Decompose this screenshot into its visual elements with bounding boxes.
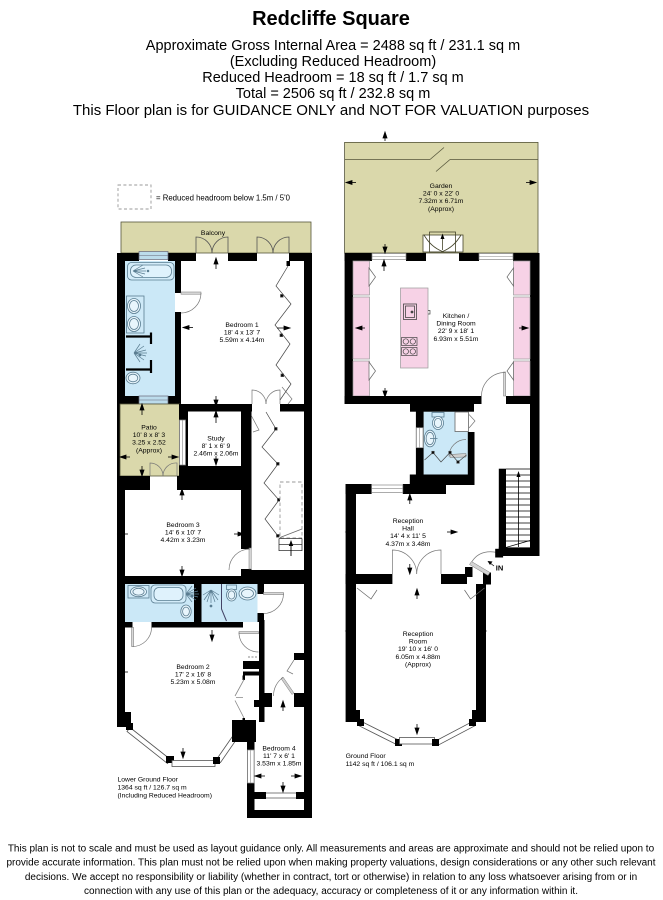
svg-text:14' 6 x 10' 7: 14' 6 x 10' 7 bbox=[165, 530, 201, 537]
svg-text:24' 0 x 22' 0: 24' 0 x 22' 0 bbox=[423, 191, 459, 198]
svg-text:(Approx): (Approx) bbox=[428, 206, 454, 213]
svg-text:Total = 2506 sq ft / 232.8 sq: Total = 2506 sq ft / 232.8 sq m bbox=[236, 86, 431, 102]
svg-text:10' 8 x 8' 3: 10' 8 x 8' 3 bbox=[133, 432, 166, 439]
svg-text:19' 10 x 16' 0: 19' 10 x 16' 0 bbox=[398, 646, 438, 653]
svg-text:Room: Room bbox=[409, 639, 427, 646]
svg-text:Reduced Headroom = 18 sq ft /: Reduced Headroom = 18 sq ft / 1.7 sq m bbox=[202, 70, 464, 86]
svg-text:(Including Reduced Headroom): (Including Reduced Headroom) bbox=[118, 793, 212, 800]
svg-text:5.23m x 5.08m: 5.23m x 5.08m bbox=[171, 679, 216, 686]
svg-text:3.25 x 2.52: 3.25 x 2.52 bbox=[132, 440, 166, 447]
svg-text:14' 4 x 11' 5: 14' 4 x 11' 5 bbox=[390, 533, 426, 540]
svg-text:provide accurate information.: provide accurate information. This plan … bbox=[6, 858, 655, 869]
svg-text:Approximate Gross Internal Are: Approximate Gross Internal Area = 2488 s… bbox=[146, 38, 520, 54]
svg-text:6.93m x 5.51m: 6.93m x 5.51m bbox=[434, 336, 479, 343]
svg-text:8' 1 x 6' 9: 8' 1 x 6' 9 bbox=[202, 443, 231, 450]
svg-text:11' 7 x 6' 1: 11' 7 x 6' 1 bbox=[263, 753, 295, 760]
svg-text:Patio: Patio bbox=[141, 425, 157, 432]
svg-text:Bedroom 3: Bedroom 3 bbox=[166, 522, 199, 529]
svg-text:Bedroom 4: Bedroom 4 bbox=[262, 746, 295, 753]
svg-text:1142 sq ft / 106.1 sq m: 1142 sq ft / 106.1 sq m bbox=[346, 761, 415, 768]
svg-text:Bedroom 2: Bedroom 2 bbox=[176, 664, 209, 671]
svg-text:This Floor plan is for GUIDANC: This Floor plan is for GUIDANCE ONLY and… bbox=[73, 102, 589, 119]
svg-text:Balcony: Balcony bbox=[201, 230, 226, 237]
svg-text:Redcliffe Square: Redcliffe Square bbox=[252, 8, 410, 30]
svg-text:(Approx): (Approx) bbox=[136, 447, 162, 454]
svg-text:1364 sq ft / 126.7 sq m: 1364 sq ft / 126.7 sq m bbox=[118, 785, 187, 792]
svg-text:(Approx): (Approx) bbox=[405, 661, 431, 668]
svg-text:Reception: Reception bbox=[393, 518, 424, 525]
svg-text:4.42m x 3.23m: 4.42m x 3.23m bbox=[161, 537, 206, 544]
svg-text:= Reduced headroom below 1.5m: = Reduced headroom below 1.5m / 5'0 bbox=[156, 194, 291, 203]
svg-text:Bedroom 1: Bedroom 1 bbox=[225, 322, 258, 329]
svg-text:22' 9 x 18' 1: 22' 9 x 18' 1 bbox=[438, 328, 474, 335]
svg-text:4.37m x 3.48m: 4.37m x 3.48m bbox=[386, 541, 431, 548]
svg-text:connection with any use of thi: connection with any use of this plan or … bbox=[84, 886, 578, 897]
svg-text:(Excluding Reduced Headroom): (Excluding Reduced Headroom) bbox=[230, 54, 436, 70]
svg-text:5.59m x 4.14m: 5.59m x 4.14m bbox=[220, 337, 265, 344]
svg-text:This plan is not to scale and: This plan is not to scale and must be us… bbox=[8, 844, 655, 855]
svg-text:Ground Floor: Ground Floor bbox=[346, 753, 387, 760]
svg-text:Kitchen /: Kitchen / bbox=[443, 313, 470, 320]
svg-text:7.32m x 6.71m: 7.32m x 6.71m bbox=[419, 198, 464, 205]
svg-text:18' 4 x 13' 7: 18' 4 x 13' 7 bbox=[224, 330, 260, 337]
svg-text:3.53m x 1.85m: 3.53m x 1.85m bbox=[257, 761, 302, 768]
svg-text:17' 2 x 16' 8: 17' 2 x 16' 8 bbox=[175, 672, 211, 679]
svg-text:Lower Ground Floor: Lower Ground Floor bbox=[118, 777, 179, 784]
svg-text:Hall: Hall bbox=[402, 526, 414, 533]
svg-text:6.05m x 4.88m: 6.05m x 4.88m bbox=[396, 654, 441, 661]
svg-text:Reception: Reception bbox=[403, 631, 434, 638]
svg-text:Study: Study bbox=[207, 436, 225, 443]
svg-text:IN: IN bbox=[496, 564, 504, 573]
svg-text:Dining Room: Dining Room bbox=[436, 321, 476, 328]
svg-text:Garden: Garden bbox=[430, 183, 453, 190]
svg-text:decisions. We accept no respon: decisions. We accept no responsibility o… bbox=[25, 872, 637, 883]
